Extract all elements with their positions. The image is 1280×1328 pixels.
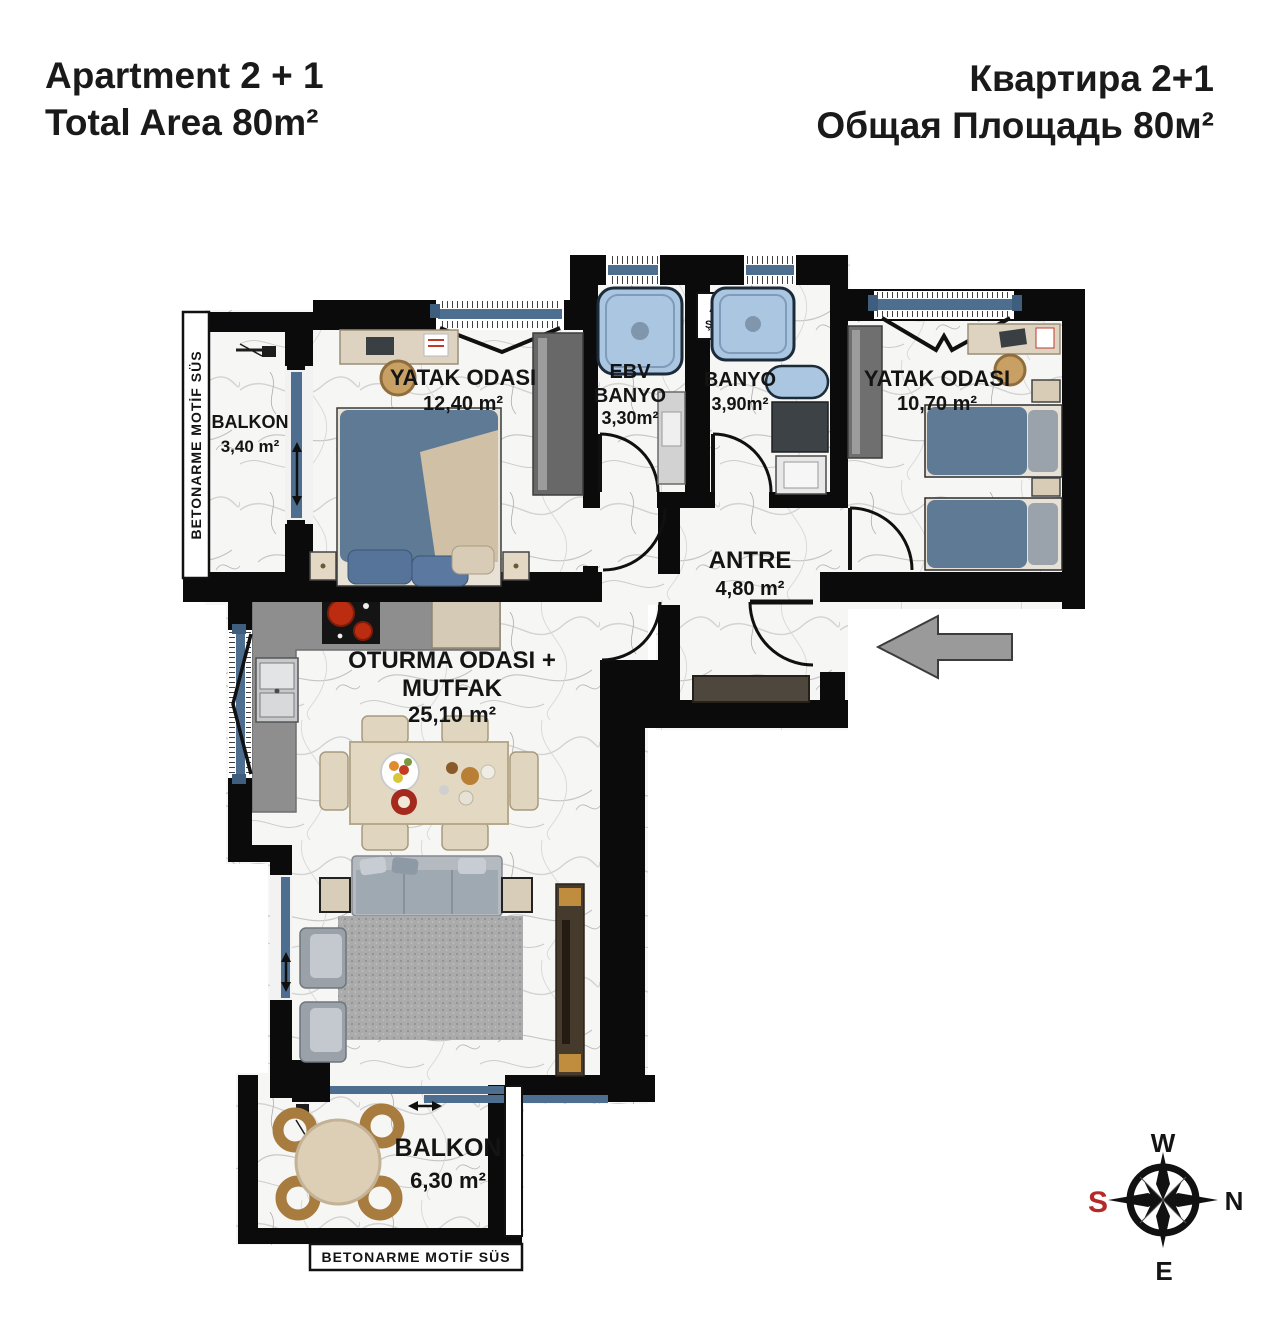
floor-plan: AT ŞAF bbox=[0, 0, 1280, 1328]
bedroom-left-name: YATAK ODASI bbox=[390, 365, 536, 390]
ensuite-bath-name-line2: BANYO bbox=[594, 385, 666, 407]
single-bed bbox=[925, 405, 1062, 477]
bath-window bbox=[744, 255, 796, 285]
hallway-name: ANTRE bbox=[709, 547, 792, 574]
rack-icon bbox=[262, 346, 276, 357]
side-table bbox=[320, 878, 350, 912]
balcony-top-name: BALKON bbox=[212, 412, 289, 432]
nightstand bbox=[1032, 380, 1060, 402]
decor-strip-bottom-label: BETONARME MOTİF SÜS bbox=[321, 1249, 510, 1265]
ensuite-bath-name-line1: EBV bbox=[609, 361, 651, 383]
compass-west-label: W bbox=[1151, 1128, 1176, 1158]
tv-unit bbox=[556, 884, 584, 1076]
bath-area: 3,90m² bbox=[711, 394, 768, 414]
decor-strip-left-label: BETONARME MOTİF SÜS bbox=[188, 350, 204, 539]
washer bbox=[772, 402, 828, 452]
armchair bbox=[300, 1002, 346, 1062]
entrance-arrow-icon bbox=[878, 616, 1012, 678]
kitchen-sink bbox=[256, 658, 298, 722]
ensuite-bath-area: 3,30m² bbox=[601, 408, 658, 428]
single-bed bbox=[925, 498, 1062, 570]
bedroom-right-area: 10,70 m² bbox=[897, 393, 977, 415]
living-name-line1: OTURMA ODASI + bbox=[348, 647, 556, 674]
entrance-mat bbox=[693, 676, 809, 702]
round-table bbox=[296, 1120, 380, 1204]
compass-north-label: N bbox=[1225, 1186, 1244, 1216]
armchair bbox=[300, 928, 346, 988]
compass-south-label: S bbox=[1088, 1186, 1108, 1219]
side-table bbox=[502, 878, 532, 912]
living-area: 25,10 m² bbox=[408, 702, 496, 727]
balcony-bottom-area: 6,30 m² bbox=[410, 1168, 486, 1193]
sofa bbox=[352, 856, 502, 916]
bedroom-left-area: 12,40 m² bbox=[423, 393, 503, 415]
balcony-bottom-name: BALKON bbox=[395, 1134, 502, 1162]
decor-strip-left: BETONARME MOTİF SÜS bbox=[183, 312, 209, 578]
kitchen-window bbox=[228, 624, 252, 784]
balcony-top-area: 3,40 m² bbox=[221, 437, 280, 456]
compass-rose: W N S E bbox=[1088, 1128, 1243, 1286]
desk bbox=[968, 324, 1060, 354]
double-bed bbox=[337, 408, 501, 586]
living-name-line2: MUTFAK bbox=[402, 675, 503, 702]
nightstand bbox=[1032, 478, 1060, 496]
desk bbox=[340, 330, 458, 364]
balcony-top-sliding-door bbox=[285, 360, 313, 530]
hallway-area: 4,80 m² bbox=[716, 578, 785, 600]
compass-east-label: E bbox=[1155, 1256, 1172, 1286]
ensuite-bath-window bbox=[606, 255, 660, 285]
rug bbox=[338, 916, 523, 1040]
living-left-window bbox=[270, 875, 292, 1000]
bedroom-right-name: YATAK ODASI bbox=[864, 366, 1010, 391]
bath-name: BANYO bbox=[704, 369, 776, 391]
